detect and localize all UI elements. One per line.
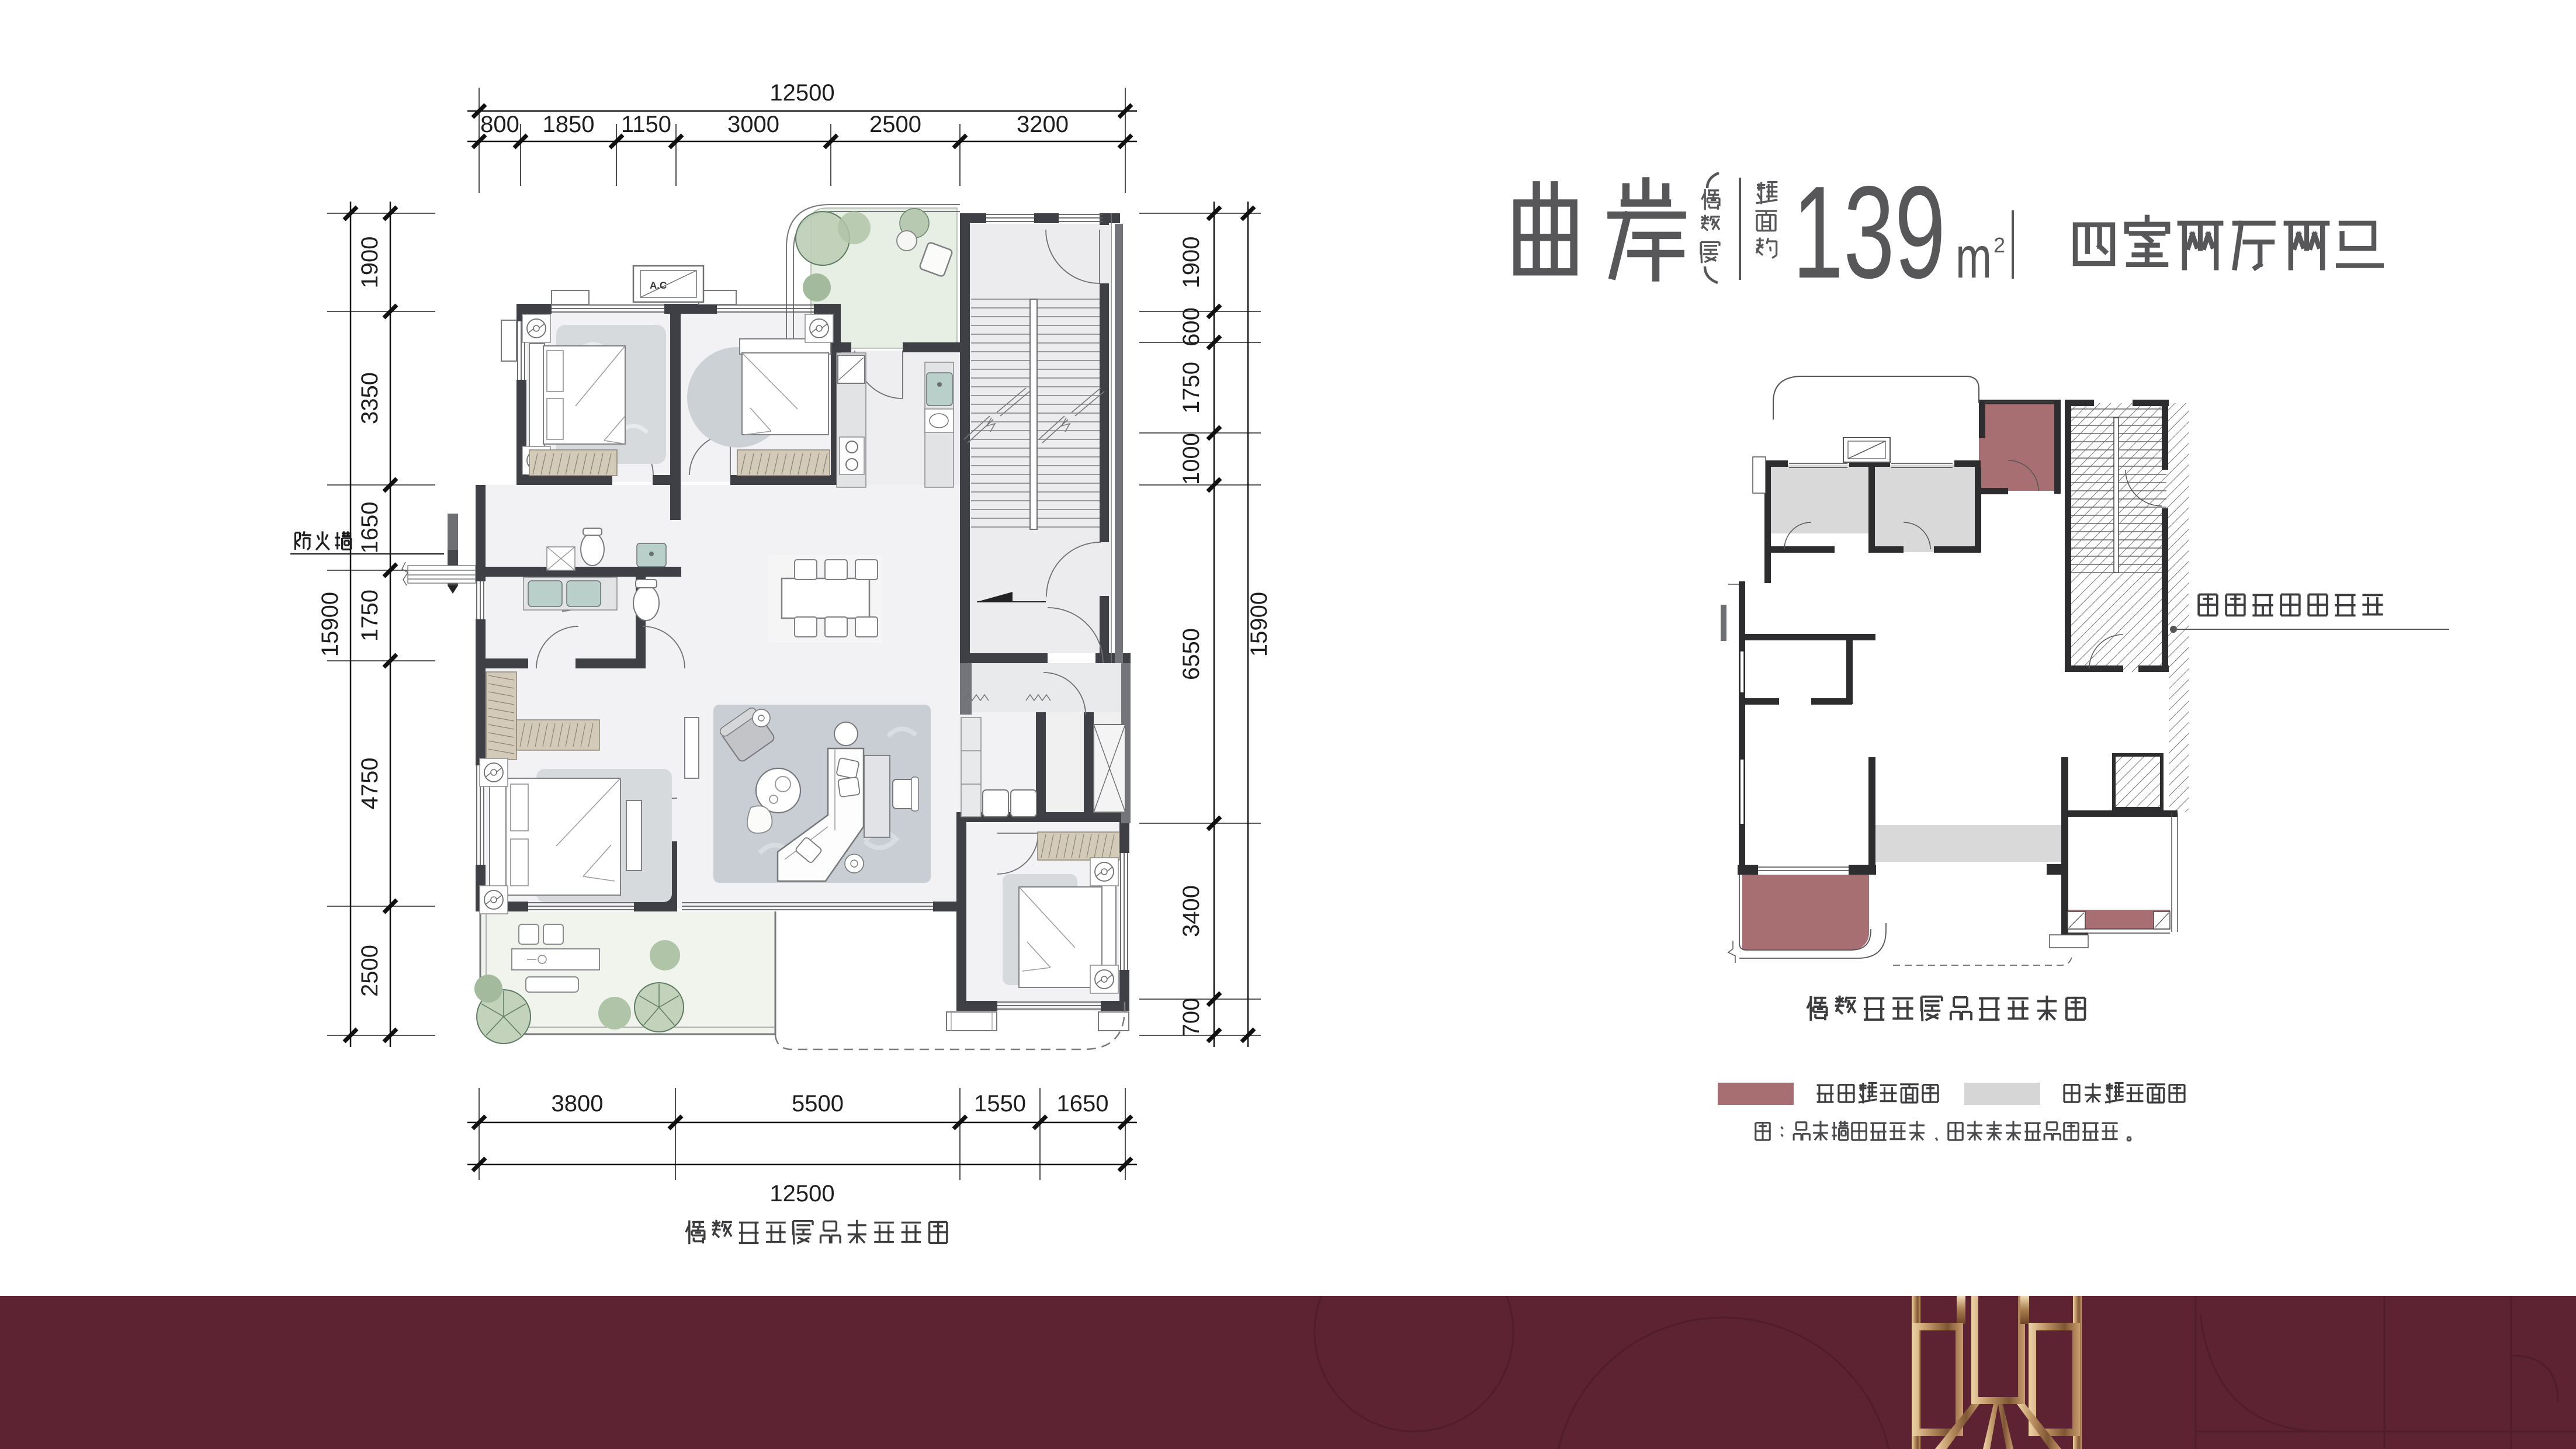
svg-text:3000: 3000 bbox=[727, 112, 779, 137]
svg-text:5500: 5500 bbox=[792, 1091, 844, 1117]
svg-text:3200: 3200 bbox=[1017, 112, 1069, 137]
svg-text:1150: 1150 bbox=[621, 112, 671, 137]
svg-text:1000: 1000 bbox=[1178, 433, 1204, 485]
svg-text:2500: 2500 bbox=[869, 112, 921, 137]
svg-text:15900: 15900 bbox=[317, 592, 343, 657]
svg-text:4750: 4750 bbox=[357, 758, 383, 810]
svg-text:2: 2 bbox=[1993, 233, 2005, 257]
svg-text:3800: 3800 bbox=[552, 1091, 604, 1117]
svg-text:12500: 12500 bbox=[769, 80, 834, 106]
svg-text:A.C: A.C bbox=[650, 280, 667, 291]
svg-text:1650: 1650 bbox=[1057, 1091, 1109, 1117]
svg-text:6550: 6550 bbox=[1178, 628, 1204, 680]
svg-text:15900: 15900 bbox=[1246, 592, 1272, 657]
svg-text:1900: 1900 bbox=[1178, 237, 1204, 289]
svg-text:1900: 1900 bbox=[357, 237, 383, 289]
svg-text:1850: 1850 bbox=[543, 112, 595, 137]
svg-text:2500: 2500 bbox=[357, 945, 383, 997]
svg-text:12500: 12500 bbox=[769, 1181, 834, 1207]
svg-text:3400: 3400 bbox=[1178, 885, 1204, 937]
svg-text:3350: 3350 bbox=[357, 372, 383, 424]
svg-text:1750: 1750 bbox=[357, 590, 383, 642]
svg-text:800: 800 bbox=[480, 112, 519, 137]
svg-text:1750: 1750 bbox=[1178, 362, 1204, 414]
svg-text:139: 139 bbox=[1793, 158, 1946, 306]
svg-text:1550: 1550 bbox=[974, 1091, 1026, 1117]
svg-text:1650: 1650 bbox=[357, 502, 383, 554]
svg-text:700: 700 bbox=[1178, 998, 1204, 1037]
svg-text:m: m bbox=[1956, 225, 1992, 290]
svg-text:600: 600 bbox=[1178, 307, 1204, 346]
